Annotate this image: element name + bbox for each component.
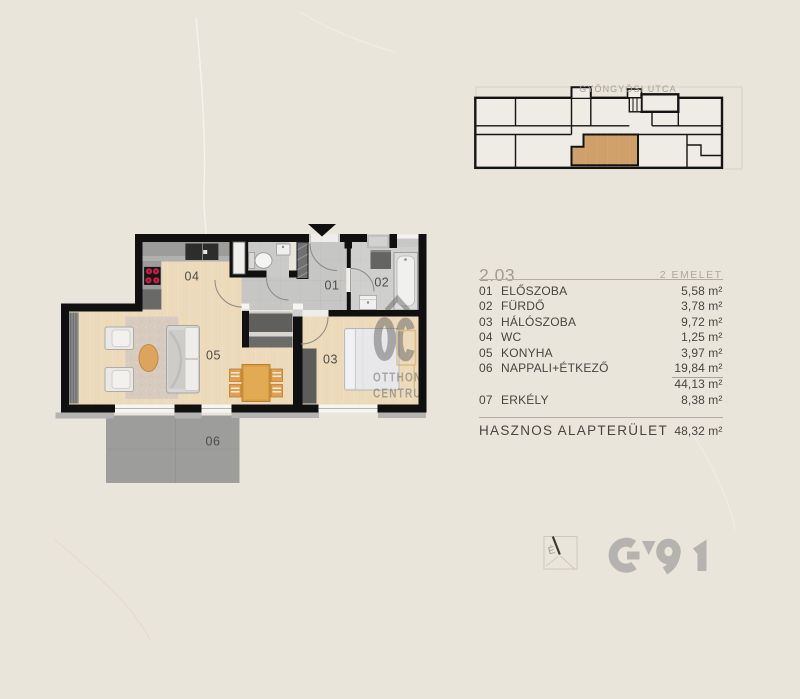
svg-text:01: 01: [325, 279, 340, 293]
svg-text:04: 04: [185, 270, 200, 284]
svg-text:GYÖNGYÖSI UTCA: GYÖNGYÖSI UTCA: [579, 84, 676, 94]
svg-text:02: 02: [374, 276, 389, 290]
svg-text:OTTHON: OTTHON: [373, 372, 422, 385]
svg-text:03: 03: [323, 353, 338, 367]
svg-text:05: 05: [206, 349, 221, 363]
svg-text:06: 06: [206, 435, 221, 449]
